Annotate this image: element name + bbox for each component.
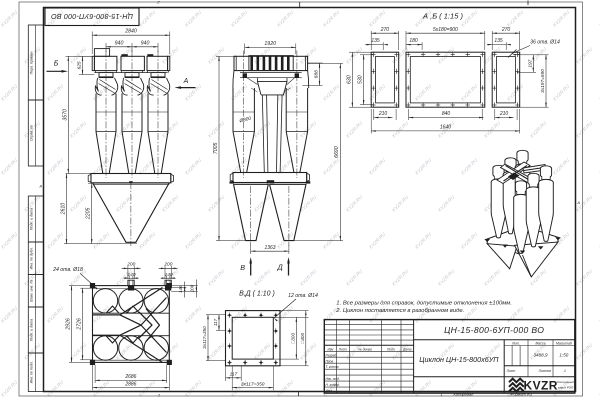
svg-text:Масштаб: Масштаб [556, 341, 572, 345]
svg-text:3x197=590: 3x197=590 [540, 69, 546, 93]
svg-text:Котельный: Котельный [557, 380, 574, 384]
svg-text:Инв. № дубл.: Инв. № дубл. [29, 247, 33, 269]
svg-text:24 отв. Ø18: 24 отв. Ø18 [52, 267, 83, 273]
svg-text:завод РЭП: завод РЭП [557, 385, 574, 389]
svg-text:1: 1 [564, 369, 566, 373]
svg-text:200: 200 [190, 284, 195, 293]
svg-text:3x117=350: 3x117=350 [202, 326, 207, 349]
svg-text:Нач. отд.: Нач. отд. [326, 377, 340, 381]
svg-text:Пров.: Пров. [326, 359, 335, 363]
svg-text:Утв.: Утв. [326, 389, 333, 393]
svg-text:5x180=900: 5x180=900 [433, 27, 458, 33]
svg-text:Разраб.: Разраб. [326, 353, 338, 357]
svg-text:Листов: Листов [538, 369, 552, 373]
svg-text:135: 135 [371, 38, 380, 44]
svg-text:Лист: Лист [506, 369, 516, 373]
svg-text:2926: 2926 [65, 318, 71, 331]
svg-text:940: 940 [115, 40, 124, 46]
svg-text:140: 140 [165, 272, 173, 278]
svg-text:Д: Д [277, 263, 283, 272]
svg-text:3x117=350: 3x117=350 [241, 381, 265, 387]
svg-text:Взам. инв. №: Взам. инв. № [29, 280, 33, 302]
svg-text:□300: □300 [290, 333, 295, 344]
svg-text:36 отв. Ø14: 36 отв. Ø14 [530, 40, 560, 46]
svg-text:940: 940 [141, 40, 150, 46]
svg-text:6690: 6690 [334, 146, 340, 158]
svg-text:2840: 2840 [124, 29, 137, 35]
svg-text:В: В [240, 263, 245, 272]
svg-text:210: 210 [378, 111, 388, 117]
svg-text:117: 117 [213, 318, 218, 326]
svg-text:530: 530 [358, 75, 364, 84]
svg-text:ЦН-15-800-6УП-000 ВО: ЦН-15-800-6УП-000 ВО [51, 12, 133, 21]
svg-text:1:50: 1:50 [559, 353, 568, 358]
svg-text:Перв. примен.: Перв. примен. [29, 51, 33, 75]
svg-text:KVZR: KVZR [524, 379, 558, 393]
svg-text:2686: 2686 [124, 374, 136, 380]
svg-text:270: 270 [380, 27, 390, 33]
svg-text:Дата: Дата [402, 347, 412, 351]
svg-text:Б: Б [54, 61, 59, 68]
svg-text:7005: 7005 [213, 143, 219, 155]
svg-text:200: 200 [163, 262, 172, 268]
svg-text:2886: 2886 [124, 381, 136, 387]
svg-text:Н. контр.: Н. контр. [326, 383, 340, 387]
svg-text:1: 1 [440, 392, 442, 397]
svg-text:1. Все размеры для справок, до: 1. Все размеры для справок, допустимые о… [336, 300, 512, 306]
svg-text:А ,Б ( 1:15 ): А ,Б ( 1:15 ) [422, 12, 463, 21]
svg-text:2205: 2205 [86, 208, 92, 221]
svg-text:3570: 3570 [62, 109, 68, 121]
svg-text:2726: 2726 [77, 318, 83, 331]
svg-text:Копировал: Копировал [454, 392, 475, 397]
svg-text:Масса: Масса [535, 341, 545, 345]
svg-text:12 отв. Ø14: 12 отв. Ø14 [288, 293, 318, 299]
svg-text:Справ. №: Справ. № [29, 125, 33, 141]
svg-text:Подп. и дата: Подп. и дата [29, 319, 33, 342]
svg-text:200: 200 [126, 262, 135, 268]
svg-text:840: 840 [442, 111, 451, 117]
svg-text:630: 630 [346, 75, 352, 84]
svg-text:2. Циклон поставляется в разоб: 2. Циклон поставляется в разобранном вид… [335, 308, 464, 314]
svg-text:117: 117 [230, 372, 238, 378]
svg-text:2610: 2610 [60, 203, 66, 216]
svg-text:625: 625 [77, 61, 83, 69]
svg-text:Лит.: Лит. [511, 341, 520, 345]
svg-text:180: 180 [409, 38, 418, 44]
svg-text:Лист: Лист [338, 347, 348, 351]
svg-text:Подп. и дата: Подп. и дата [29, 208, 33, 231]
svg-text:1363: 1363 [264, 245, 275, 251]
svg-text:888: 888 [314, 70, 320, 78]
svg-text:Т. контр.: Т. контр. [326, 365, 340, 369]
svg-text:№ докум.: № докум. [358, 347, 372, 351]
svg-text:А: А [576, 201, 580, 205]
svg-text:197: 197 [527, 59, 533, 67]
svg-text:ЦН-15-800-6УП-000 ВО: ЦН-15-800-6УП-000 ВО [444, 325, 544, 335]
svg-text:А: А [183, 78, 189, 85]
svg-text:Циклон ЦН-15-800х6УП: Циклон ЦН-15-800х6УП [419, 355, 499, 364]
svg-text:А: А [39, 185, 43, 189]
svg-text:270: 270 [501, 27, 511, 33]
svg-text:1920: 1920 [264, 41, 276, 47]
svg-text:Изм: Изм [327, 347, 334, 351]
svg-text:□400: □400 [300, 333, 305, 344]
svg-text:В,Д ( 1:10 ): В,Д ( 1:10 ) [239, 290, 275, 297]
svg-text:Инв. № подл.: Инв. № подл. [29, 361, 33, 383]
svg-text:210: 210 [499, 111, 509, 117]
svg-text:3488,9: 3488,9 [533, 353, 547, 358]
svg-text:Подп.: Подп. [387, 347, 396, 351]
svg-text:140: 140 [178, 285, 183, 293]
svg-text:1640: 1640 [440, 125, 451, 131]
svg-text:140: 140 [127, 272, 135, 278]
svg-text:135: 135 [494, 38, 503, 44]
